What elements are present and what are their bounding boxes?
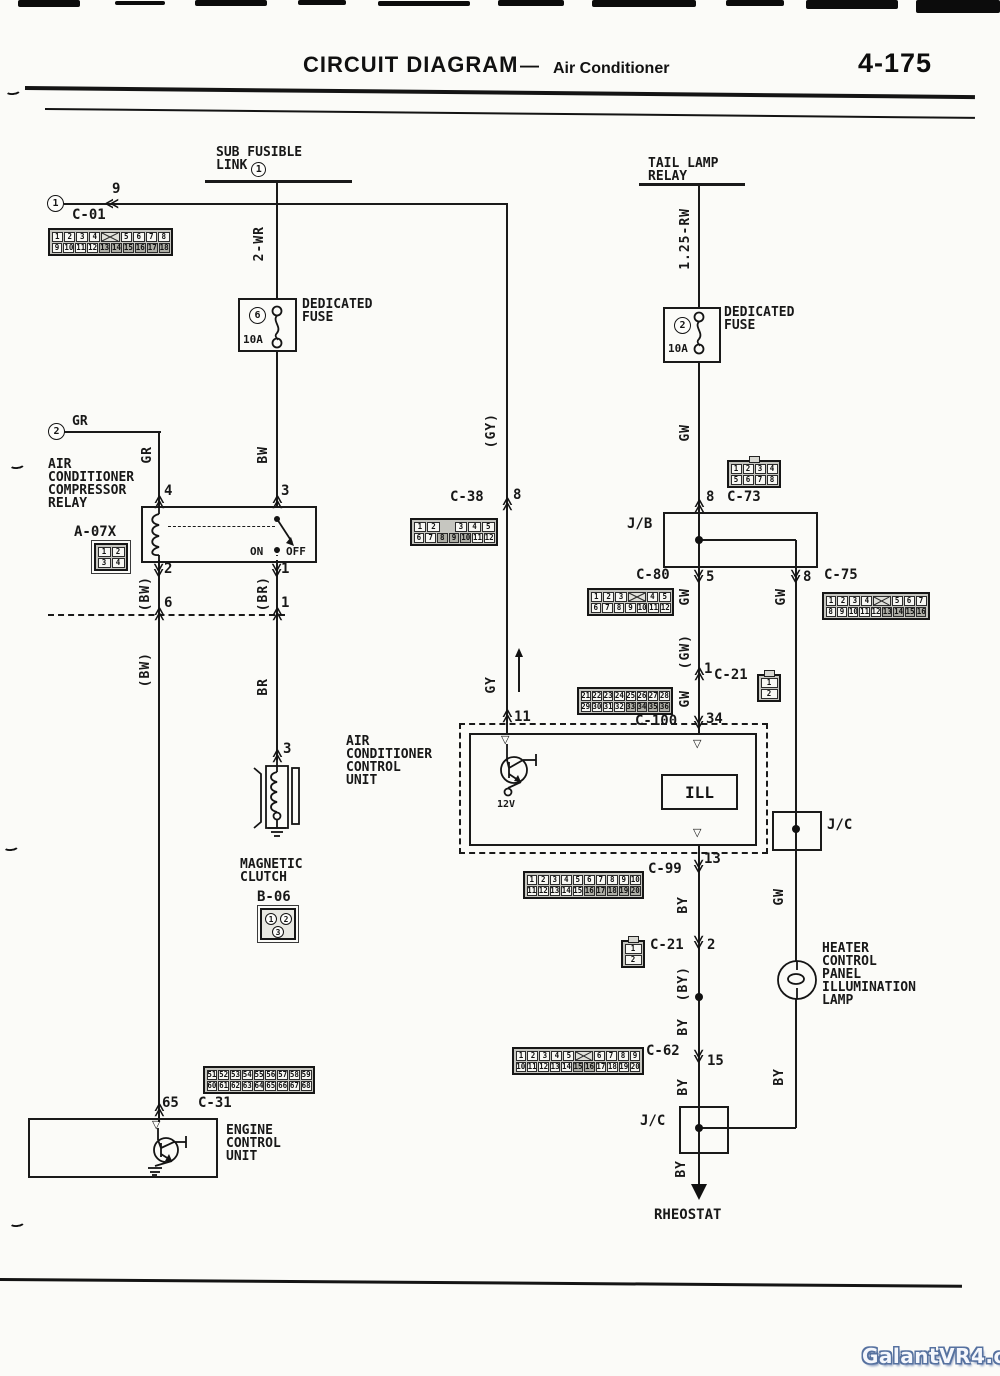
connector-pin-cell: 2: [427, 522, 440, 532]
wire-label-gw-4: GW: [678, 690, 693, 708]
connector-pin-cell: 10: [460, 533, 471, 543]
scan-curl-mark: [9, 459, 26, 470]
sub-fusible-link-label-2: LINK1: [216, 159, 266, 177]
connector-pin-cell: 3: [539, 1051, 550, 1061]
connector-pin-cell: 35: [648, 702, 658, 712]
connector-pin-cell: 6: [594, 1051, 605, 1061]
fuse-left-number: 6: [249, 307, 266, 324]
connector-pin-cell: 11: [527, 886, 538, 896]
connector-key-cell: [101, 232, 119, 242]
fuse-right-number: 2: [674, 317, 691, 334]
wire-label-by-5: BY: [772, 1068, 787, 1086]
connector-row: 1: [625, 944, 642, 954]
connector-pin-cell: 4: [551, 1051, 562, 1061]
connector-pin-cell: 3: [550, 875, 561, 885]
wire-gr-horizontal: [64, 431, 161, 433]
connector-row: 9101112131415161718: [52, 243, 170, 253]
connector-pin-cell: 64: [254, 1081, 265, 1091]
connector-pin-cell: 2: [603, 592, 614, 602]
connector-pin-cell: 20: [630, 886, 641, 896]
connector-b06: 1 2 3: [260, 908, 296, 940]
connector-c75: 12345678910111213141516: [822, 592, 930, 620]
wire-label-by-2: BY: [676, 1018, 691, 1036]
connector-pin-cell: 6: [584, 875, 595, 885]
connector-pin-cell: 7: [602, 603, 613, 613]
connector-pin-cell: 3: [76, 232, 87, 242]
connector-pin-cell: 15: [573, 886, 584, 896]
connector-pin-cell: 5: [892, 596, 903, 606]
connector-pin-cell: 65: [265, 1081, 276, 1091]
connector-pin-cell: 11: [75, 243, 86, 253]
connector-pin-cell: 15: [123, 243, 134, 253]
connector-c99: 1234567891011121314151617181920: [523, 871, 644, 899]
junction-connector-bottom-box: [679, 1106, 729, 1154]
pin-number-jb-5: 5: [706, 570, 714, 585]
connector-row: 2: [761, 689, 778, 699]
connector-c80: 123456789101112: [587, 588, 674, 616]
connector-pin-cell: 1: [826, 596, 837, 606]
connector-pin-cell: 1: [625, 944, 642, 954]
connector-label-c01: C-01: [72, 208, 106, 223]
connector-row: 12345678: [52, 232, 170, 242]
connector-label-c38: C-38: [450, 490, 484, 505]
wire-arrow-up: ≪: [269, 606, 285, 622]
connector-pin-cell: 8: [826, 607, 836, 617]
wire-label-125rw: 1.25-RW: [678, 208, 693, 270]
page-subtitle: Air Conditioner: [553, 60, 669, 78]
rheostat-arrowhead: [691, 1184, 707, 1200]
connector-label-c99: C-99: [648, 862, 682, 877]
fuse-icon-left: [268, 305, 286, 349]
ecu-label-3: UNIT: [226, 1150, 257, 1164]
connector-pin-cell: 1: [591, 592, 602, 602]
connector-pin-cell: 62: [230, 1081, 241, 1091]
wire-by-lamp-to-jc: [795, 998, 797, 1128]
connector-pin-cell: 4: [468, 522, 481, 532]
relay-off-label: OFF: [286, 546, 306, 558]
connector-pin-cell: 54: [242, 1070, 253, 1080]
connector-pin-cell: 23: [603, 691, 613, 701]
connector-row: 12345: [591, 592, 671, 602]
wire-c01-horizontal: [64, 203, 508, 205]
connector-pin-cell: 12: [871, 607, 881, 617]
magnetic-clutch-icon: [246, 758, 304, 844]
connector-pin-cell: 18: [607, 886, 618, 896]
connector-pin-cell: 1: [516, 1051, 527, 1061]
connector-blank-cell: [441, 522, 454, 532]
connector-pin-cell: 58: [289, 1070, 300, 1080]
connector-row: 606162636465666768: [207, 1081, 312, 1091]
pin-number-c73-8: 8: [706, 490, 714, 505]
connector-pin-cell: 6: [414, 533, 425, 543]
connector-pin-cell: 29: [581, 702, 591, 712]
wire-label-gw-2: GW: [678, 588, 693, 606]
junction-dot-by: [695, 993, 703, 1001]
connector-pin-cell: 2: [64, 232, 75, 242]
connector-row: 12345678910: [527, 875, 641, 885]
wire-label-2wr: 2-WR: [252, 226, 267, 261]
wire-arrow-left: ≪: [104, 196, 120, 212]
connector-row: 12345: [414, 522, 495, 532]
connector-pin-cell: 57: [277, 1070, 288, 1080]
transistor-icon-ecu: [142, 1128, 198, 1176]
connector-pin-cell: 14: [111, 243, 122, 253]
connector-c38: 123456789101112: [410, 518, 498, 546]
connector-pin-cell: 36: [659, 702, 669, 712]
wire-label-gw-5: GW: [772, 888, 787, 906]
connector-pin-cell: 13: [550, 886, 561, 896]
wire-sub-fusible-bus: [205, 180, 352, 183]
connector-c73: 12345678: [727, 460, 781, 488]
exit-triangle: ▽: [693, 826, 701, 839]
scan-artifact: [378, 1, 470, 6]
pin-number-c21b-2: 2: [707, 938, 715, 953]
connector-pin-cell: 1: [52, 232, 63, 242]
connector-pin-cell: 19: [619, 886, 630, 896]
connector-pin-cell: 7: [916, 596, 927, 606]
connector-pin-cell: 60: [207, 1081, 218, 1091]
wire-bw-fuse-to-relay: [276, 352, 278, 506]
connector-pin-cell: 22: [592, 691, 602, 701]
connector-row: 6789101112: [414, 533, 495, 543]
connector-row: 5678: [731, 475, 778, 485]
wire-arrow-down: ≪: [151, 562, 167, 578]
connector-a07x: 1234: [94, 543, 128, 571]
connector-pin-cell: 6: [743, 475, 754, 485]
connector-pin-cell: 4: [861, 596, 872, 606]
connector-pin-cell: 59: [301, 1070, 312, 1080]
connector-pin-cell: 18: [159, 243, 170, 253]
relay-coil-icon: [148, 506, 170, 563]
connector-key-cell: [628, 592, 646, 602]
connector-pin-cell: 7: [146, 232, 157, 242]
connector-pin-cell: 3: [849, 596, 860, 606]
heater-lamp-icon: [775, 958, 819, 1002]
scan-artifact: [498, 0, 564, 6]
connector-pin-cell: 19: [619, 1062, 629, 1072]
sub-fusible-link-label-2-text: LINK: [216, 158, 247, 173]
wire-label-by-3: BY: [676, 1078, 691, 1096]
connector-pin-cell: 10: [848, 607, 858, 617]
connector-pin-cell: 4: [647, 592, 658, 602]
connector-label-c62: C-62: [646, 1044, 680, 1059]
connector-c21a: 12: [757, 674, 781, 702]
connector-pin-cell: 2: [761, 689, 778, 699]
wire-label-gr-horiz: GR: [72, 415, 88, 429]
connector-pin-cell: 34: [637, 702, 647, 712]
connector-pin-cell: 5: [121, 232, 132, 242]
wire-label-br: BR: [256, 678, 271, 696]
wire-arrow-up: ≪: [499, 496, 515, 512]
connector-pin-cell: 11: [859, 607, 869, 617]
connector-row: 123456789: [516, 1051, 641, 1061]
scan-artifact: [806, 0, 898, 9]
connector-pin-cell: 52: [218, 1070, 229, 1080]
fuse-right-rating: 10A: [668, 343, 688, 355]
connector-pin-cell: 10: [63, 243, 74, 253]
connector-pin-cell: 4: [89, 232, 100, 242]
connector-pin-cell: 61: [218, 1081, 229, 1091]
wire-2wr-upper: [276, 180, 278, 298]
fuse-icon-right: [690, 311, 708, 355]
b06-pin-3: 3: [272, 926, 284, 938]
scan-artifact: [195, 0, 267, 6]
scan-artifact: [726, 0, 784, 6]
connector-pin-cell: 21: [581, 691, 591, 701]
connector-pin-cell: 1: [761, 678, 778, 688]
connector-pin-cell: 9: [52, 243, 63, 253]
connector-c62: 1234567891011121314151617181920: [512, 1047, 644, 1075]
ill-label: ILL: [685, 783, 714, 802]
entry-triangle: ▽: [693, 737, 701, 750]
wire-label-by-paren: (BY): [676, 966, 691, 1001]
footer-rule: [0, 1278, 962, 1287]
connector-pin-cell: 14: [561, 886, 572, 896]
connector-pin-cell: 56: [265, 1070, 276, 1080]
connector-key-cell: [873, 596, 890, 606]
wire-label-bw: BW: [256, 446, 271, 464]
connector-pin-cell: 17: [147, 243, 158, 253]
scan-artifact: [115, 1, 165, 5]
gy-direction-arrow-line: [518, 656, 520, 692]
connector-pin-cell: 2: [112, 547, 125, 557]
fuse-left-label-2: FUSE: [302, 311, 333, 325]
connector-pin-cell: 2: [538, 875, 549, 885]
connector-row: 1011121314151617181920: [516, 1062, 641, 1072]
connector-pin-cell: 2: [625, 955, 642, 965]
connector-pin-cell: 51: [207, 1070, 218, 1080]
connector-pin-cell: 17: [596, 1062, 606, 1072]
b06-pin-1: 1: [265, 913, 277, 925]
connector-pin-cell: 13: [550, 1062, 560, 1072]
wire-label-gw-1: GW: [678, 424, 693, 442]
jb-label: J/B: [627, 517, 652, 532]
b06-label: B-06: [257, 890, 291, 905]
connector-pin-cell: 11: [472, 533, 483, 543]
connector-pin-cell: 25: [626, 691, 636, 701]
connector-pin-cell: 10: [630, 875, 641, 885]
connector-row: 1: [761, 678, 778, 688]
connector-label-c31: C-31: [198, 1096, 232, 1111]
connector-pin-cell: 14: [893, 607, 903, 617]
power-source-2-circle: 2: [48, 423, 65, 440]
jc-bottom-label: J/C: [640, 1114, 665, 1129]
connector-pin-cell: 20: [630, 1062, 640, 1072]
connector-pin-cell: 24: [614, 691, 624, 701]
control-unit-label-4: UNIT: [346, 774, 377, 788]
wire-arrow-down: ≪: [788, 568, 804, 584]
wire-label-by-1: BY: [676, 896, 691, 914]
wire-arrow-up: ≪: [151, 606, 167, 622]
connector-pin-cell: 12: [538, 886, 549, 896]
connector-pin-cell: 8: [618, 1051, 629, 1061]
cu-12v-label: 12V: [497, 800, 515, 811]
connector-pin-cell: 4: [767, 464, 778, 474]
junction-block-box: [663, 512, 818, 568]
connector-pin-cell: 16: [584, 1062, 594, 1072]
wire-arrow-up: ≪: [691, 666, 707, 682]
connector-pin-cell: 12: [538, 1062, 548, 1072]
scan-curl-mark: [5, 85, 22, 96]
wire-label-gy-paren: (GY): [484, 413, 499, 448]
connector-pin-cell: 7: [755, 475, 766, 485]
connector-pin-cell: 9: [449, 533, 460, 543]
connector-pin-cell: 67: [289, 1081, 300, 1091]
connector-label-c80: C-80: [636, 568, 670, 583]
connector-label-c21a: C-21: [714, 668, 748, 683]
connector-pin-cell: 3: [615, 592, 626, 602]
connector-pin-cell: 12: [660, 603, 671, 613]
pin-number-c62-15: 15: [707, 1054, 724, 1069]
connector-pin-cell: 8: [614, 603, 625, 613]
power-source-1-circle: 1: [47, 195, 64, 212]
connector-pin-cell: 9: [837, 607, 847, 617]
connector-row: 11121314151617181920: [527, 886, 641, 896]
junction-connector-right-box: [772, 811, 822, 851]
connector-row: 8910111213141516: [826, 607, 927, 617]
connector-pin-cell: 16: [584, 886, 595, 896]
relay-on-label: ON: [250, 546, 263, 558]
connector-pin-cell: 10: [637, 603, 648, 613]
connector-pin-cell: 4: [112, 558, 125, 568]
scan-artifact: [592, 0, 696, 7]
connector-row: 1234: [731, 464, 778, 474]
wire-arrow-down: ≪: [691, 858, 707, 874]
wire-gy-vertical: [506, 203, 508, 737]
connector-pin-cell: 27: [648, 691, 658, 701]
connector-pin-cell: 5: [563, 1051, 574, 1061]
connector-pin-cell: 3: [455, 522, 468, 532]
watermark-text: GalantVR4.org: [862, 1344, 1000, 1368]
connector-pin-cell: 5: [482, 522, 495, 532]
connector-c31: 515253545556575859606162636465666768: [203, 1066, 315, 1094]
connector-pin-cell: 8: [158, 232, 169, 242]
connector-pin-cell: 9: [619, 875, 630, 885]
connector-pin-cell: 2: [527, 1051, 538, 1061]
gy-direction-arrowhead: [515, 648, 523, 657]
b06-pin-2: 2: [280, 913, 292, 925]
connector-pin-cell: 13: [99, 243, 110, 253]
connector-row: 515253545556575859: [207, 1070, 312, 1080]
wire-label-by-4: BY: [674, 1160, 689, 1178]
wire-arrow-down: ≪: [691, 934, 707, 950]
connector-pin-cell: 16: [916, 607, 926, 617]
connector-pin-cell: 8: [767, 475, 778, 485]
connector-c01: 123456789101112131415161718: [48, 228, 173, 256]
sub-fusible-link-number: 1: [251, 162, 266, 177]
compressor-relay-label-4: RELAY: [48, 497, 87, 511]
page-number: 4-175: [858, 48, 932, 79]
connector-pin-cell: 28: [659, 691, 669, 701]
pin-number-jb-8: 8: [803, 570, 811, 585]
fuse-left-rating: 10A: [243, 334, 263, 346]
heater-lamp-label-5: LAMP: [822, 994, 853, 1008]
connector-pin-cell: 7: [425, 533, 436, 543]
connector-pin-cell: 16: [135, 243, 146, 253]
connector-pin-cell: 2: [837, 596, 848, 606]
a07x-label: A-07X: [74, 525, 116, 540]
pin-number-c01: 9: [112, 182, 120, 197]
connector-pin-cell: 14: [561, 1062, 571, 1072]
connector-pin-cell: 26: [637, 691, 647, 701]
connector-pin-cell: 15: [573, 1062, 583, 1072]
connector-pin-cell: 53: [230, 1070, 241, 1080]
jc-right-label: J/C: [827, 818, 852, 833]
scan-curl-mark: [3, 841, 20, 852]
connector-pin-cell: 15: [905, 607, 915, 617]
connector-pin-cell: 6: [133, 232, 144, 242]
connector-pin-cell: 1: [414, 522, 427, 532]
connector-pin-cell: 55: [254, 1070, 265, 1080]
connector-pin-cell: 6: [591, 603, 602, 613]
connector-pin-cell: 68: [301, 1081, 312, 1091]
connector-pin-cell: 1: [98, 547, 111, 557]
connector-pin-cell: 13: [882, 607, 892, 617]
connector-key-cell: [575, 1051, 592, 1061]
wire-bw-relay-to-ecu: [158, 560, 160, 1122]
wire-125rw: [698, 185, 700, 307]
connector-pin-cell: 1: [527, 875, 538, 885]
connector-pin-cell: 17: [596, 886, 607, 896]
wire-label-gw-3: GW: [774, 588, 789, 606]
connector-row: 34: [98, 558, 125, 568]
connector-pin-cell: 3: [755, 464, 766, 474]
wire-label-gr-vert: GR: [140, 446, 155, 464]
connector-pin-cell: 32: [614, 702, 624, 712]
magnetic-clutch-label-2: CLUTCH: [240, 871, 287, 885]
connector-pin-cell: 7: [596, 875, 607, 885]
wire-label-gy: GY: [484, 676, 499, 694]
wire-arrow-down: ≪: [691, 568, 707, 584]
connector-c100: 21222324252627282930313233343536: [577, 687, 673, 715]
connector-row: 12: [98, 547, 125, 557]
wire-arrow-up: ≪: [151, 1102, 167, 1118]
wire-arrow-down: ≪: [691, 1048, 707, 1064]
connector-pin-cell: 8: [607, 875, 618, 885]
connector-pin-cell: 5: [731, 475, 742, 485]
title-dash: —: [520, 56, 539, 78]
scan-artifact: [916, 0, 1000, 13]
wire-label-gw-paren: (GW): [678, 634, 693, 669]
wire-br-relay-to-clutch: [276, 560, 278, 760]
connector-pin-cell: 11: [648, 603, 659, 613]
connector-pin-cell: 3: [98, 558, 111, 568]
connector-pin-cell: 1: [731, 464, 742, 474]
connector-row: 6789101112: [591, 603, 671, 613]
connector-label-c75: C-75: [824, 568, 858, 583]
connector-pin-cell: 2: [743, 464, 754, 474]
connector-pin-cell: 7: [606, 1051, 617, 1061]
connector-pin-cell: 33: [626, 702, 636, 712]
connector-pin-cell: 5: [573, 875, 584, 885]
connector-pin-cell: 30: [592, 702, 602, 712]
wire-arrow-up: ≪: [499, 708, 515, 724]
scanned-circuit-diagram-page: CIRCUIT DIAGRAM — Air Conditioner 4-175 …: [0, 0, 1000, 1376]
connector-pin-cell: 31: [603, 702, 613, 712]
header-rule-thick: [25, 86, 975, 99]
connector-pin-cell: 18: [607, 1062, 617, 1072]
connector-row: 2930313233343536: [581, 702, 670, 712]
wire-arrow-down: ≪: [269, 562, 285, 578]
connector-pin-cell: 11: [527, 1062, 537, 1072]
connector-pin-cell: 8: [437, 533, 448, 543]
scan-curl-mark: [9, 1217, 26, 1228]
rheostat-label: RHEOSTAT: [654, 1208, 721, 1223]
tail-lamp-relay-label-2: RELAY: [648, 170, 687, 184]
connector-pin-cell: 9: [625, 603, 636, 613]
connector-pin-cell: 5: [659, 592, 670, 602]
fuse-right-label-2: FUSE: [724, 319, 755, 333]
